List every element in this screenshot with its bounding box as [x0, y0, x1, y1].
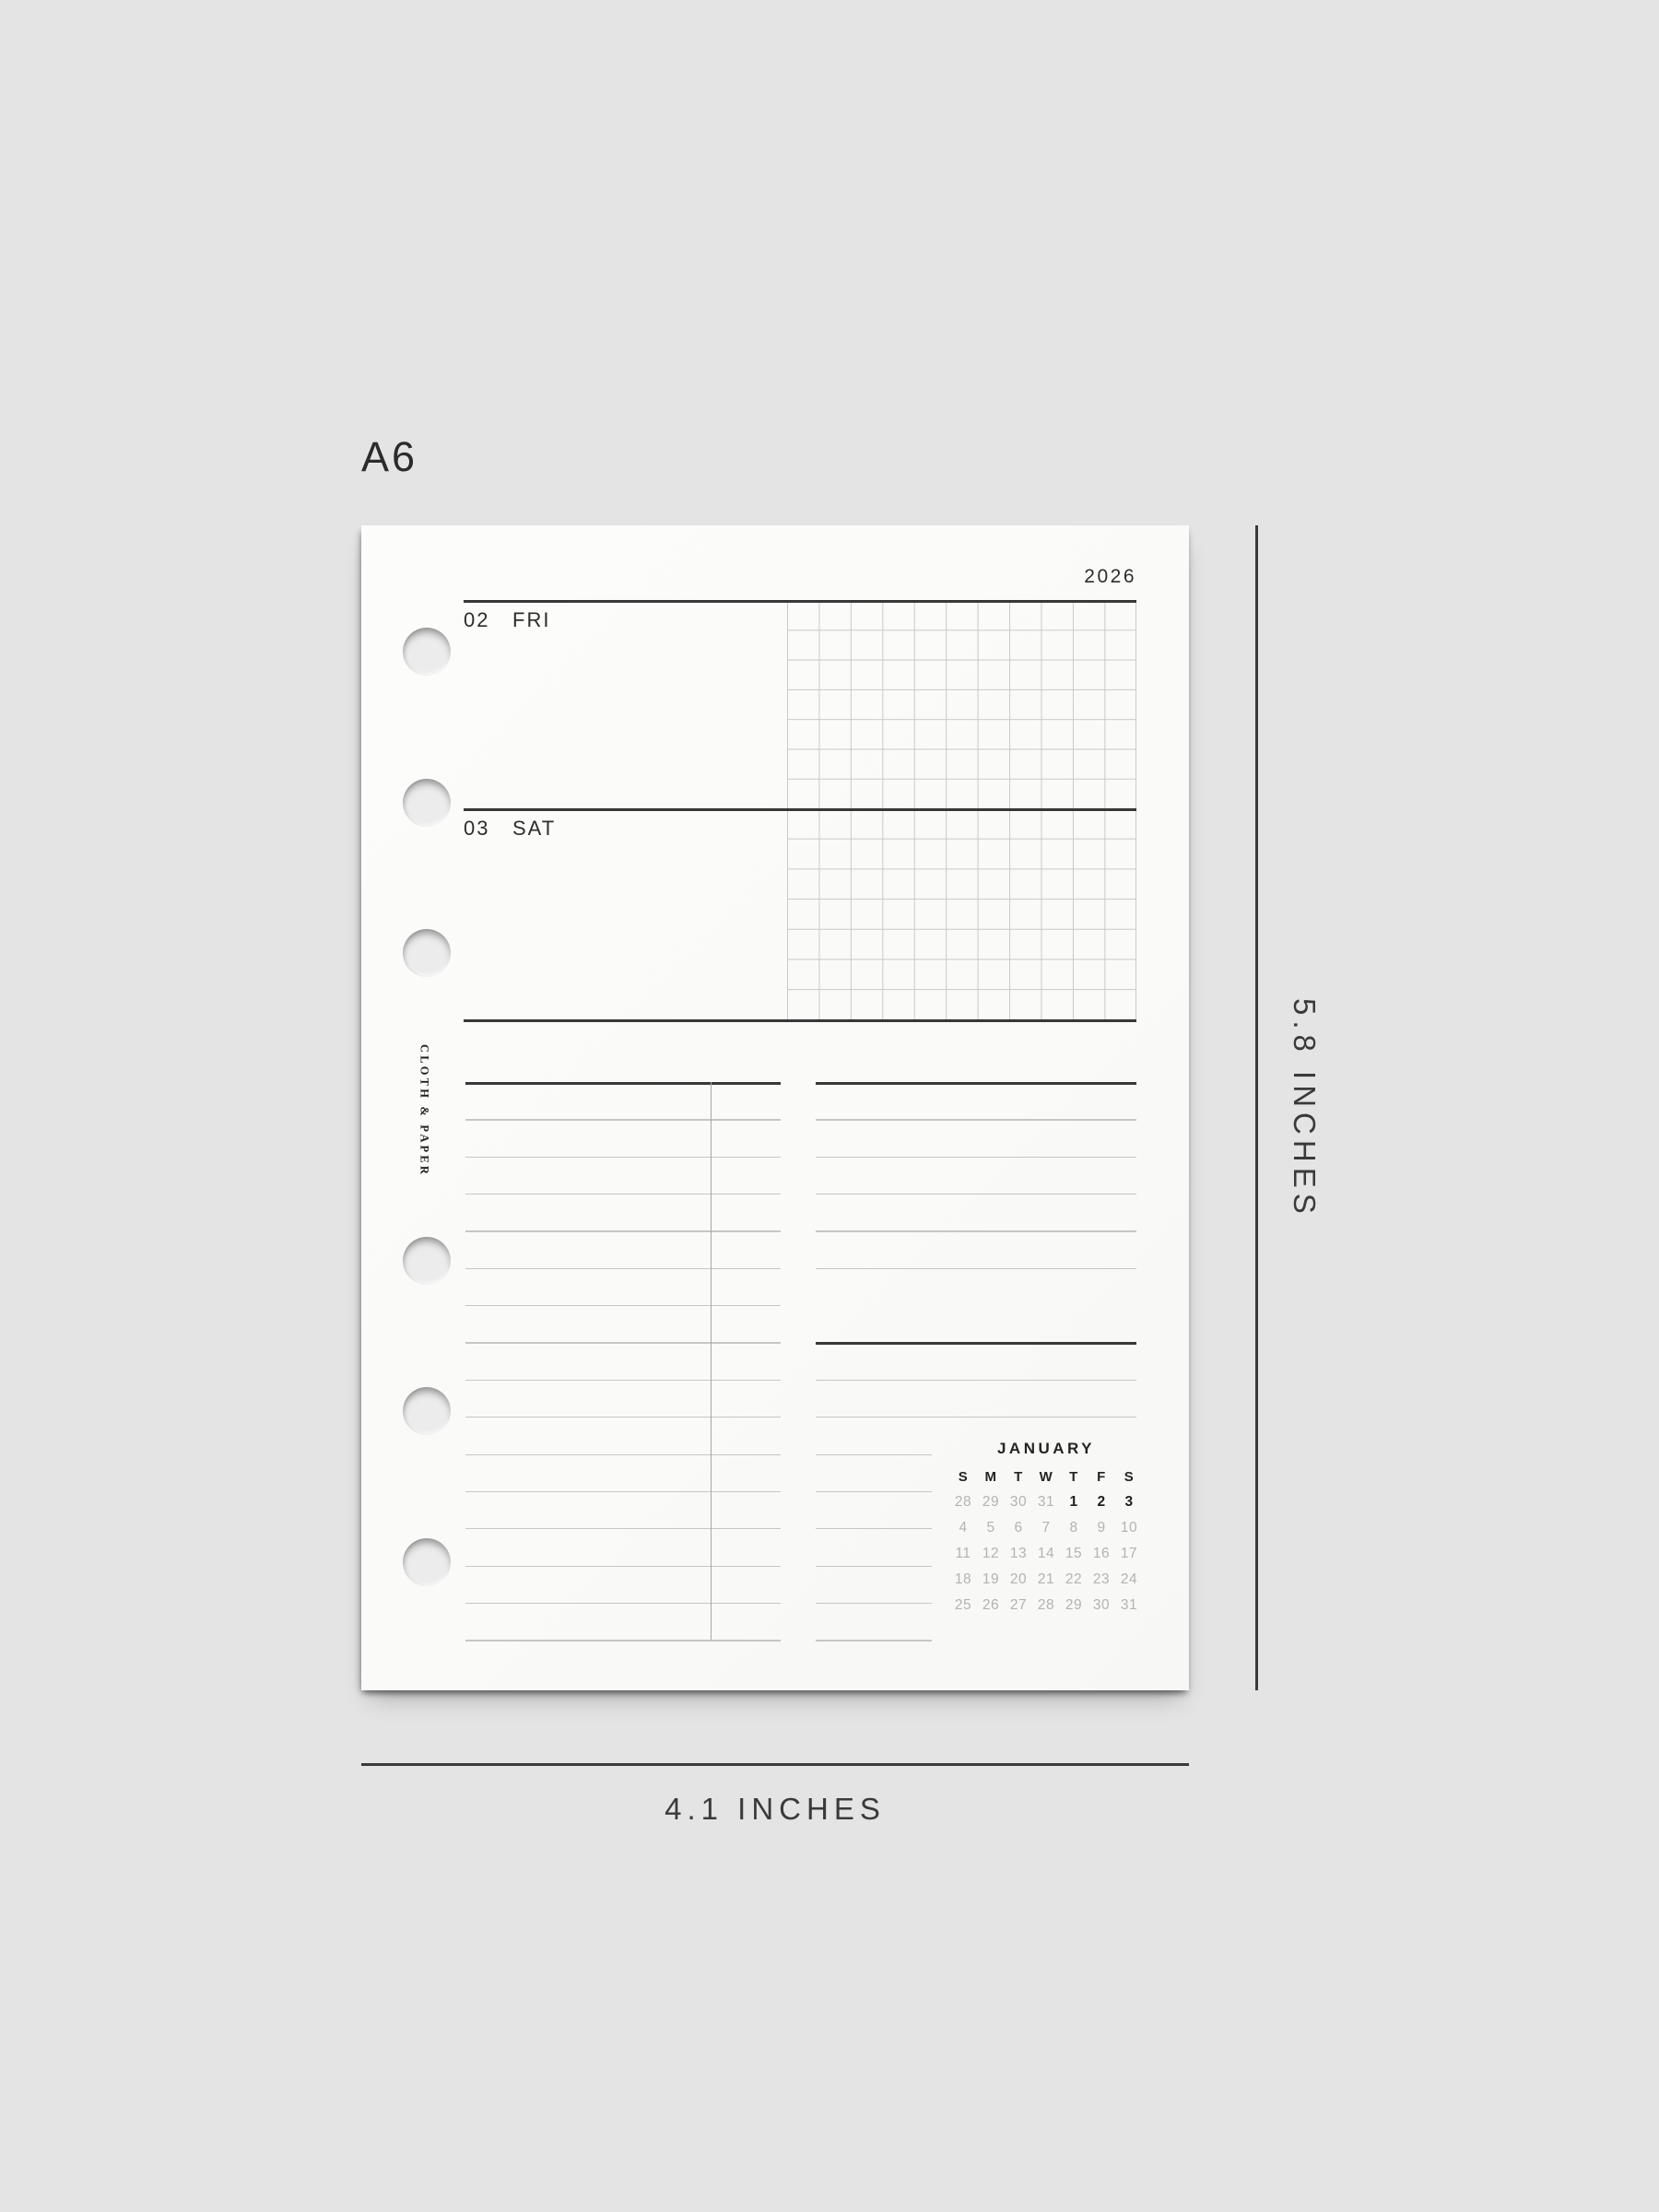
- punch-hole: [403, 1538, 451, 1586]
- ruled-line: [465, 1119, 781, 1120]
- calendar-date: 14: [1038, 1546, 1054, 1562]
- ruled-line: [816, 1268, 1136, 1269]
- calendar-date: 27: [1010, 1597, 1027, 1614]
- ruled-line: [816, 1380, 1136, 1381]
- calendar-date: 20: [1010, 1571, 1027, 1588]
- ruled-line: [465, 1157, 781, 1158]
- friday-divider-line: [464, 600, 1136, 603]
- day-number: 02: [464, 608, 489, 632]
- calendar-date: 17: [1121, 1546, 1137, 1562]
- calendar-day-header: T: [1014, 1469, 1023, 1485]
- calendar-date: 15: [1065, 1546, 1082, 1562]
- saturday-divider-line: [464, 808, 1136, 811]
- calendar-date: 11: [955, 1546, 971, 1562]
- ruled-line: [816, 1417, 1136, 1418]
- calendar-date: 7: [1041, 1520, 1050, 1536]
- ruled-line: [465, 1528, 781, 1529]
- punch-hole: [403, 929, 451, 977]
- year-label: 2026: [1084, 566, 1136, 588]
- ruled-line: [465, 1305, 781, 1306]
- punch-hole: [403, 1237, 451, 1285]
- calendar-date: 12: [982, 1546, 999, 1562]
- product-mockup-background: A6 2026 02 FRI 03 SAT CLOTH & PAPER JANU…: [0, 0, 1659, 2212]
- mini-calendar-month: JANUARY: [949, 1436, 1143, 1464]
- ruled-line: [816, 1491, 932, 1492]
- calendar-date: 13: [1010, 1546, 1027, 1562]
- ruled-line: [465, 1417, 781, 1418]
- size-label: A6: [361, 433, 418, 481]
- planner-page: 2026 02 FRI 03 SAT CLOTH & PAPER JANUARY…: [361, 525, 1189, 1690]
- ruled-line: [816, 1082, 1136, 1085]
- day-name: SAT: [512, 817, 556, 841]
- ruled-line: [816, 1603, 932, 1604]
- calendar-date: 9: [1097, 1520, 1105, 1536]
- ruled-line: [465, 1380, 781, 1381]
- punch-hole: [403, 1387, 451, 1435]
- ruled-line: [816, 1528, 932, 1529]
- height-dimension-line: [1255, 525, 1258, 1690]
- ruled-line: [816, 1119, 1136, 1120]
- ruled-line: [465, 1268, 781, 1269]
- calendar-date: 30: [1010, 1494, 1027, 1511]
- calendar-date: 19: [982, 1571, 999, 1588]
- list-column-divider: [711, 1082, 712, 1640]
- calendar-day-header: M: [985, 1469, 997, 1485]
- calendar-date: 10: [1121, 1520, 1137, 1536]
- day-name: FRI: [512, 608, 550, 632]
- friday-notes-grid: [787, 600, 1136, 808]
- ruled-line: [465, 1603, 781, 1604]
- width-dimension-label: 4.1 INCHES: [361, 1792, 1189, 1827]
- ruled-line: [465, 1640, 781, 1641]
- calendar-date: 28: [955, 1494, 971, 1511]
- calendar-day-header: T: [1069, 1469, 1078, 1485]
- calendar-date: 29: [1065, 1597, 1082, 1614]
- ruled-line: [465, 1566, 781, 1567]
- mini-calendar-grid: SMTWTFS282930311234567891011121314151617…: [949, 1464, 1143, 1618]
- ruled-line: [816, 1566, 932, 1567]
- calendar-date: 24: [1121, 1571, 1137, 1588]
- calendar-date: 3: [1124, 1494, 1133, 1511]
- ruled-line: [816, 1230, 1136, 1231]
- calendar-date: 2: [1097, 1494, 1105, 1511]
- ruled-line: [816, 1640, 932, 1641]
- ruled-line: [816, 1157, 1136, 1158]
- calendar-day-header: F: [1097, 1469, 1106, 1485]
- saturday-notes-grid: [787, 808, 1136, 1019]
- ruled-line: [465, 1342, 781, 1343]
- calendar-date: 30: [1093, 1597, 1110, 1614]
- ruled-line: [465, 1454, 781, 1455]
- calendar-date: 25: [955, 1597, 971, 1614]
- punch-hole: [403, 628, 451, 676]
- ruled-line: [465, 1082, 781, 1085]
- calendar-date: 26: [982, 1597, 999, 1614]
- calendar-date: 28: [1038, 1597, 1054, 1614]
- ruled-line: [465, 1491, 781, 1492]
- ruled-line: [465, 1194, 781, 1194]
- calendar-date: 1: [1069, 1494, 1077, 1511]
- mini-calendar: JANUARY SMTWTFS2829303112345678910111213…: [949, 1436, 1143, 1618]
- calendar-date: 5: [986, 1520, 994, 1536]
- calendar-date: 18: [955, 1571, 971, 1588]
- calendar-date: 21: [1038, 1571, 1054, 1588]
- height-dimension-label: 5.8 INCHES: [1283, 1003, 1325, 1215]
- calendar-day-header: S: [1124, 1469, 1135, 1485]
- calendar-date: 31: [1038, 1494, 1054, 1511]
- ruled-line: [816, 1194, 1136, 1194]
- punch-hole: [403, 779, 451, 827]
- calendar-date: 6: [1014, 1520, 1022, 1536]
- day-number: 03: [464, 817, 489, 841]
- ruled-line: [816, 1342, 1136, 1345]
- calendar-day-header: W: [1040, 1469, 1053, 1485]
- calendar-date: 16: [1093, 1546, 1110, 1562]
- calendar-date: 8: [1069, 1520, 1077, 1536]
- width-dimension-line: [361, 1763, 1189, 1766]
- calendar-day-header: S: [959, 1469, 969, 1485]
- ruled-line: [465, 1230, 781, 1231]
- brand-text: CLOTH & PAPER: [410, 1055, 438, 1166]
- calendar-date: 29: [982, 1494, 999, 1511]
- calendar-date: 31: [1121, 1597, 1137, 1614]
- ruled-line: [816, 1454, 932, 1455]
- calendar-date: 22: [1065, 1571, 1082, 1588]
- calendar-date: 4: [959, 1520, 967, 1536]
- grid-bottom-line: [464, 1019, 1136, 1022]
- calendar-date: 23: [1093, 1571, 1110, 1588]
